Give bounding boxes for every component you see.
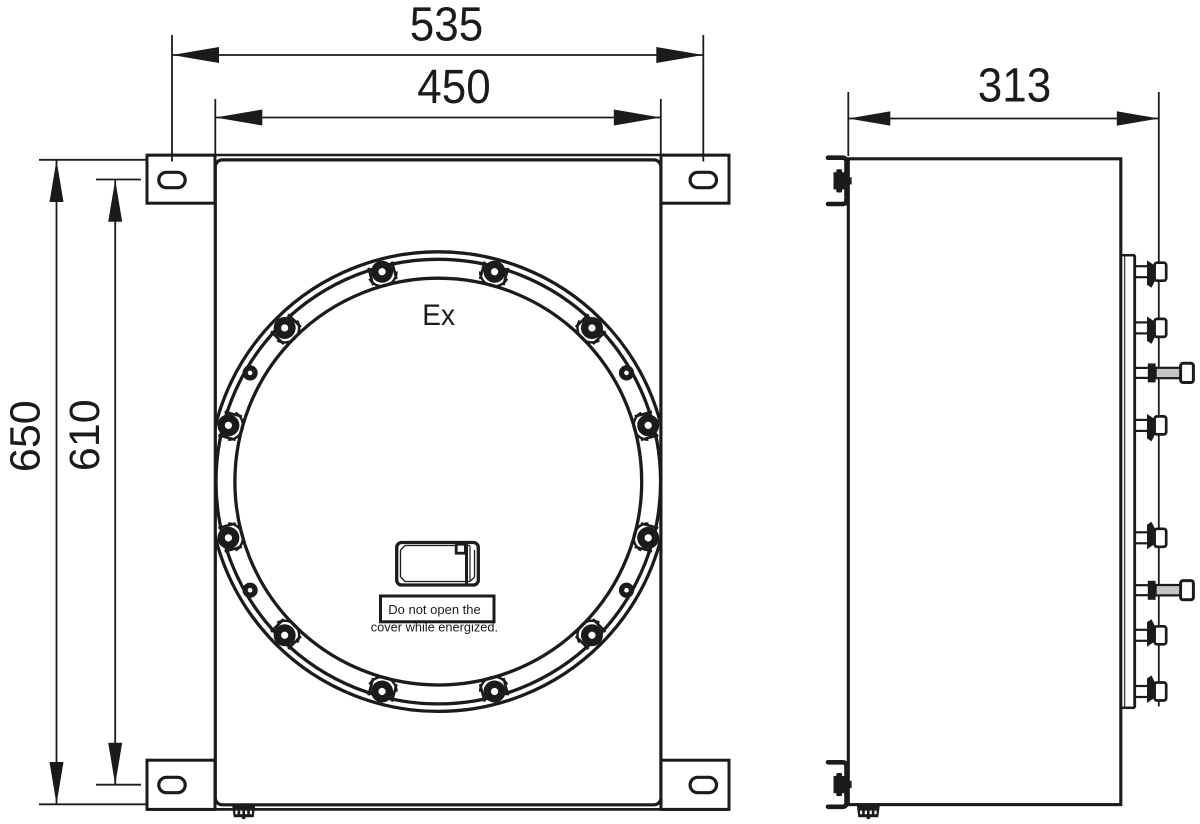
svg-text:313: 313 <box>978 57 1051 111</box>
svg-text:Do not open the: Do not open the <box>388 602 481 617</box>
svg-text:Ex: Ex <box>422 299 455 332</box>
svg-text:535: 535 <box>410 0 483 51</box>
svg-text:610: 610 <box>61 399 109 471</box>
svg-text:cover while energized.: cover while energized. <box>371 620 498 635</box>
svg-text:450: 450 <box>417 59 490 113</box>
svg-text:650: 650 <box>2 400 50 472</box>
